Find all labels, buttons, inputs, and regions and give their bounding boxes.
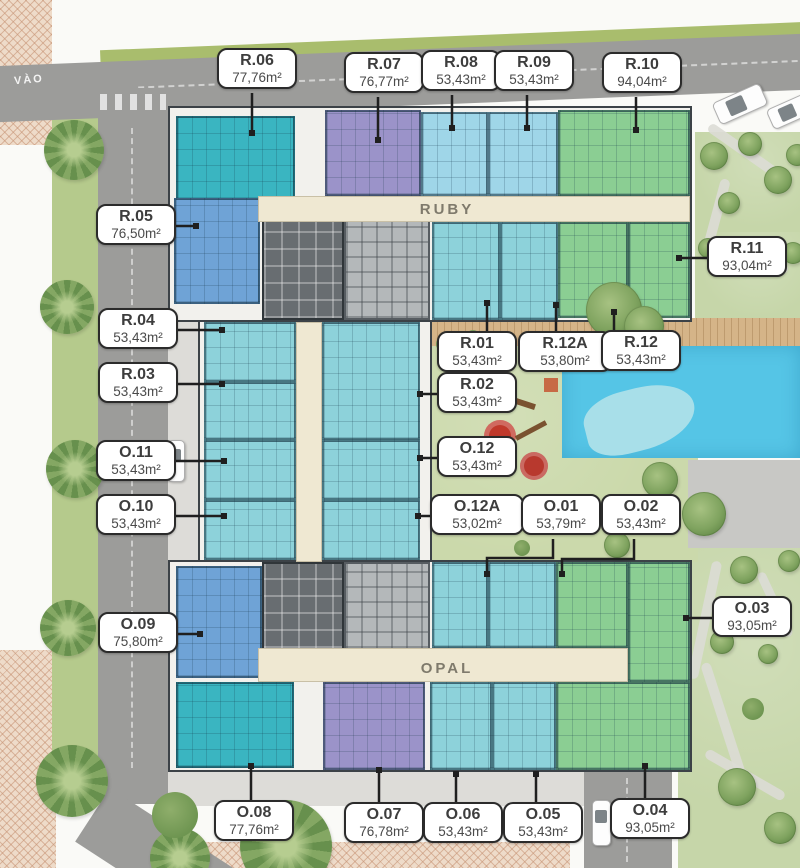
mid-corridor	[296, 322, 322, 562]
unit-label-O.06: O.0653,43m²	[423, 802, 503, 843]
unit-label-O.12A: O.12A53,02m²	[430, 494, 524, 535]
unit-label-R.12A: R.12A53,80m²	[518, 331, 612, 372]
service-core	[344, 562, 430, 650]
unit-footprint-O.01	[488, 562, 556, 648]
wing-name-ruby: RUBY	[402, 201, 492, 218]
tree	[730, 556, 758, 584]
unit-label-O.12: O.1253,43m²	[437, 436, 517, 477]
tree	[718, 192, 740, 214]
unit-footprint-R.12A	[500, 222, 558, 320]
unit-footprint-O.12	[322, 440, 420, 500]
unit-footprint-O.05	[492, 682, 556, 770]
crosswalk	[100, 94, 166, 110]
unit-footprint-R.03	[204, 382, 296, 440]
unit-footprint-R.08	[421, 112, 488, 196]
unit-label-O.05: O.0553,43m²	[503, 802, 583, 843]
unit-label-R.06: R.0677,76m²	[217, 48, 297, 89]
unit-footprint-R.10	[558, 110, 690, 196]
unit-label-R.02: R.0253,43m²	[437, 372, 517, 413]
bush	[742, 698, 764, 720]
unit-footprint-R.02	[322, 322, 420, 440]
unit-footprint-opal-mid	[432, 562, 488, 648]
tree	[758, 644, 778, 664]
unit-label-O.10: O.1053,43m²	[96, 494, 176, 535]
unit-label-O.02: O.0253,43m²	[601, 494, 681, 535]
unit-footprint-R.01	[432, 222, 500, 320]
unit-label-O.03: O.0393,05m²	[712, 596, 792, 637]
playground-equipment	[520, 452, 548, 480]
unit-label-R.03: R.0353,43m²	[98, 362, 178, 403]
palm-tree	[44, 120, 104, 180]
elevator-core	[262, 562, 344, 650]
tree	[778, 550, 800, 572]
unit-footprint-O.04	[556, 682, 690, 770]
unit-footprint-R.07	[325, 110, 421, 196]
palm-tree	[40, 280, 94, 334]
unit-label-R.10: R.1094,04m²	[602, 52, 682, 93]
unit-footprint-O.10	[204, 500, 296, 560]
unit-footprint-O.12A	[322, 500, 420, 560]
tree	[738, 132, 762, 156]
unit-footprint-O.08	[176, 682, 294, 768]
unit-label-O.04: O.0493,05m²	[610, 798, 690, 839]
car	[766, 92, 800, 131]
unit-label-R.05: R.0576,50m²	[96, 204, 176, 245]
site-plan: VÀO RUBY OPAL R.0677,76m²R.0776,77m²R.08…	[0, 0, 800, 868]
unit-label-O.07: O.0776,78m²	[344, 802, 424, 843]
wing-name-opal: OPAL	[402, 660, 492, 677]
unit-label-O.09: O.0975,80m²	[98, 612, 178, 653]
unit-label-O.11: O.1153,43m²	[96, 440, 176, 481]
tree	[718, 768, 756, 806]
unit-label-R.07: R.0776,77m²	[344, 52, 424, 93]
unit-footprint-O.03	[628, 562, 690, 682]
unit-footprint-R.06	[176, 116, 295, 200]
unit-label-R.08: R.0853,43m²	[421, 50, 501, 91]
unit-footprint-O.11	[204, 440, 296, 500]
unit-label-R.04: R.0453,43m²	[98, 308, 178, 349]
unit-label-R.12: R.1253,43m²	[601, 330, 681, 371]
tree	[764, 166, 792, 194]
unit-footprint-O.07	[323, 682, 425, 770]
palm-tree	[36, 745, 108, 817]
tree	[764, 812, 796, 844]
bush	[152, 792, 198, 838]
bush	[514, 540, 530, 556]
tree	[604, 532, 630, 558]
car	[592, 800, 611, 846]
palm-tree	[40, 600, 96, 656]
tree	[682, 492, 726, 536]
unit-footprint-R.05	[174, 198, 260, 304]
tree	[700, 142, 728, 170]
playground-equipment	[544, 378, 558, 392]
unit-footprint-O.02	[556, 562, 628, 648]
unit-footprint-R.04	[204, 322, 296, 382]
unit-label-O.01: O.0153,79m²	[521, 494, 601, 535]
unit-label-O.08: O.0877,76m²	[214, 800, 294, 841]
unit-footprint-O.06	[430, 682, 492, 770]
tree	[642, 462, 678, 498]
unit-label-R.01: R.0153,43m²	[437, 331, 517, 372]
unit-label-R.09: R.0953,43m²	[494, 50, 574, 91]
unit-footprint-R.09	[488, 112, 558, 196]
unit-label-R.11: R.1193,04m²	[707, 236, 787, 277]
unit-footprint-O.09	[176, 566, 262, 678]
